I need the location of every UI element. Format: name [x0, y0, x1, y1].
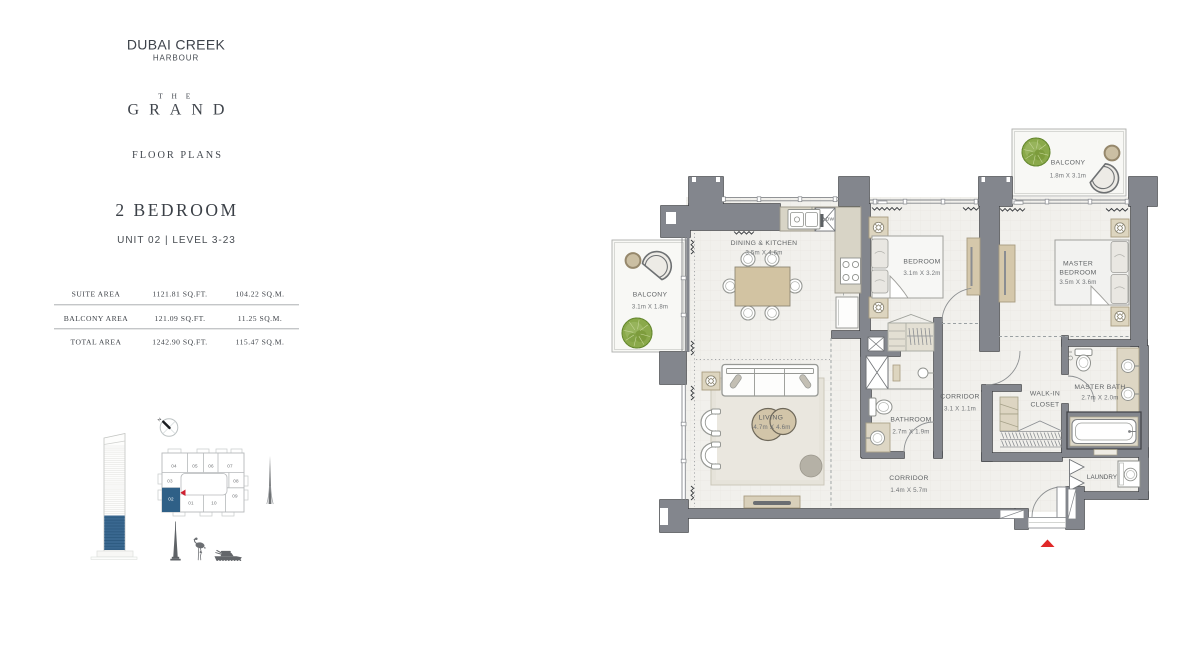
svg-text:SUITE AREA: SUITE AREA: [72, 290, 121, 299]
svg-text:DINING & KITCHEN: DINING & KITCHEN: [731, 240, 798, 247]
svg-text:3.1m X 1.8m: 3.1m X 1.8m: [632, 305, 668, 311]
svg-text:10: 10: [211, 501, 217, 506]
svg-text:LAUNDRY: LAUNDRY: [1087, 474, 1117, 481]
svg-text:CLOSET: CLOSET: [1031, 402, 1060, 409]
svg-text:UNIT 02 | LEVEL 3-23: UNIT 02 | LEVEL 3-23: [117, 235, 236, 246]
svg-text:104.22 SQ.M.: 104.22 SQ.M.: [235, 290, 284, 299]
svg-text:1.8m X 3.1m: 1.8m X 3.1m: [1050, 174, 1086, 180]
svg-text:BATHROOM: BATHROOM: [890, 417, 931, 424]
svg-text:3.1 X 1.1m: 3.1 X 1.1m: [944, 406, 976, 413]
svg-text:02: 02: [168, 497, 174, 502]
svg-text:1121.81 SQ.FT.: 1121.81 SQ.FT.: [152, 290, 207, 299]
svg-text:DW: DW: [826, 217, 835, 223]
svg-text:GRAND: GRAND: [128, 102, 235, 119]
svg-text:115.47 SQ.M.: 115.47 SQ.M.: [236, 337, 285, 346]
svg-text:HARBOUR: HARBOUR: [153, 54, 199, 63]
svg-text:TOTAL AREA: TOTAL AREA: [70, 337, 121, 346]
svg-text:2 BEDROOM: 2 BEDROOM: [115, 200, 238, 220]
svg-text:CORRIDOR: CORRIDOR: [889, 475, 928, 482]
svg-text:BALCONY: BALCONY: [1051, 160, 1086, 167]
svg-text:WALK-IN: WALK-IN: [1030, 391, 1060, 398]
svg-text:11.25 SQ.M.: 11.25 SQ.M.: [238, 314, 282, 323]
svg-text:1.4m X 5.7m: 1.4m X 5.7m: [890, 487, 927, 494]
svg-text:2.7m X 1.9m: 2.7m X 1.9m: [892, 429, 929, 436]
svg-text:3.1m X 3.2m: 3.1m X 3.2m: [903, 270, 940, 277]
svg-text:BEDROOM: BEDROOM: [1059, 270, 1096, 277]
svg-text:3.5m X 3.6m: 3.5m X 3.6m: [1059, 279, 1096, 286]
svg-text:CORRIDOR: CORRIDOR: [940, 394, 979, 401]
svg-text:FLOOR PLANS: FLOOR PLANS: [132, 150, 223, 161]
svg-text:BEDROOM: BEDROOM: [903, 259, 940, 266]
svg-text:121.09 SQ.FT.: 121.09 SQ.FT.: [154, 314, 205, 323]
svg-text:09: 09: [232, 494, 238, 499]
svg-text:T H E: T H E: [158, 92, 194, 101]
svg-text:LIVING: LIVING: [759, 415, 784, 422]
svg-text:08: 08: [233, 479, 239, 484]
svg-text:03: 03: [167, 479, 173, 484]
svg-text:06: 06: [208, 464, 214, 469]
svg-text:DUBAI CREEK: DUBAI CREEK: [127, 37, 226, 53]
svg-text:2.7m X 2.0m: 2.7m X 2.0m: [1081, 395, 1118, 402]
svg-text:3.5m X 4.6m: 3.5m X 4.6m: [745, 250, 782, 257]
svg-text:MASTER BATH: MASTER BATH: [1074, 384, 1125, 391]
svg-text:05: 05: [192, 464, 198, 469]
svg-text:1242.90 SQ.FT.: 1242.90 SQ.FT.: [152, 337, 207, 346]
svg-text:BALCONY AREA: BALCONY AREA: [64, 314, 129, 323]
svg-text:01: 01: [188, 501, 194, 506]
svg-text:4.7m X 4.6m: 4.7m X 4.6m: [753, 424, 790, 431]
svg-text:04: 04: [171, 464, 177, 469]
svg-text:07: 07: [227, 464, 233, 469]
svg-text:BALCONY: BALCONY: [633, 292, 668, 299]
svg-text:MASTER: MASTER: [1063, 261, 1093, 268]
